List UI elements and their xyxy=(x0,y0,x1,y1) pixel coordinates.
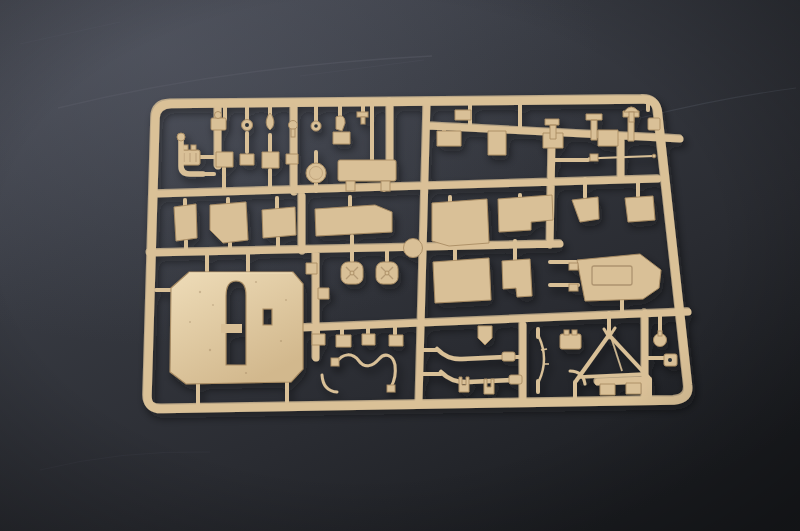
photo xyxy=(0,0,800,531)
vignette xyxy=(0,0,800,531)
sprue-photo xyxy=(0,0,800,531)
